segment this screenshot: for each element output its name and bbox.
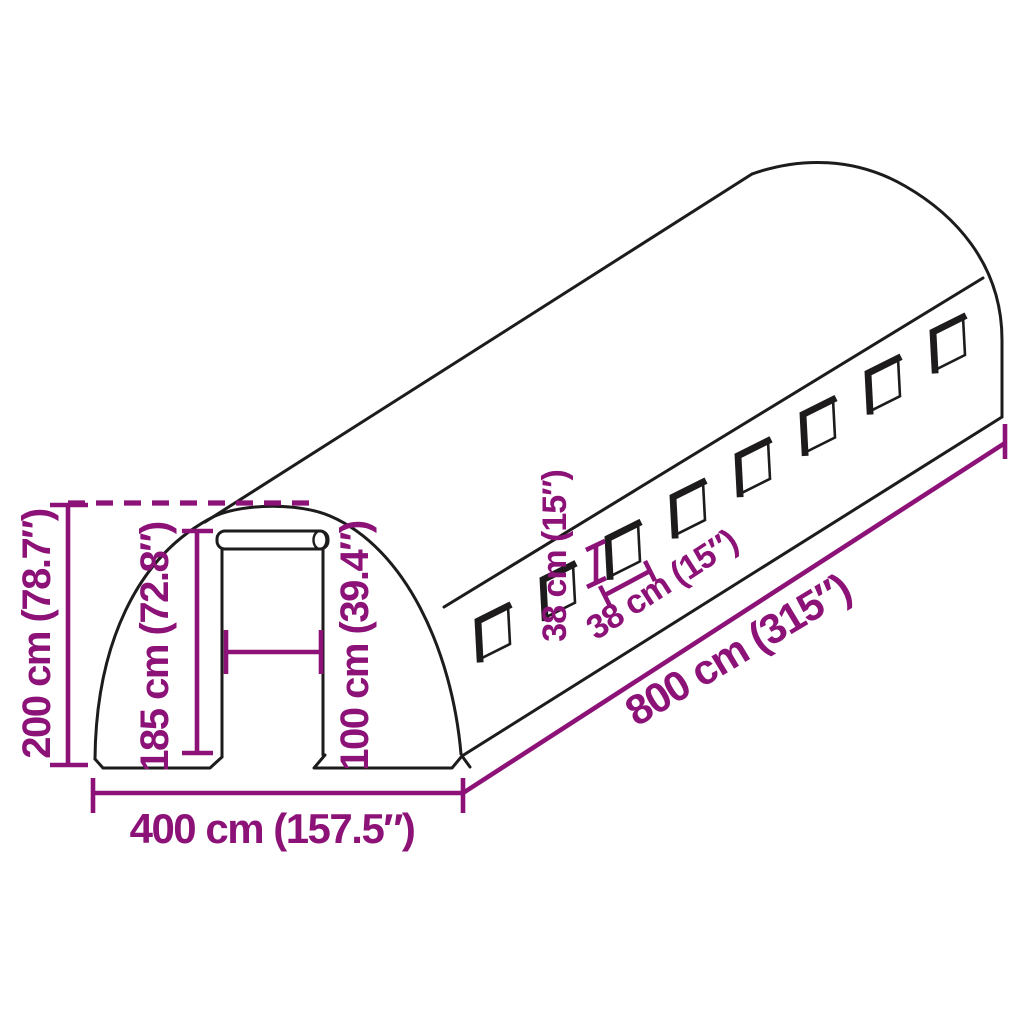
window-8 — [933, 317, 965, 370]
dimension-door-width: 100 cm (39.4″) — [226, 521, 377, 771]
window-6 — [803, 400, 835, 453]
window-3 — [608, 523, 640, 576]
door-height-label: 185 cm (72.8″) — [133, 522, 177, 772]
greenhouse-dimension-diagram: 200 cm (78.7″) 185 cm (72.8″) 100 cm (39… — [0, 0, 1024, 1024]
window-height-line — [586, 541, 606, 587]
door-width-label: 100 cm (39.4″) — [333, 521, 377, 771]
window-1 — [478, 606, 510, 659]
total-height-label: 200 cm (78.7″) — [15, 509, 59, 759]
door-roll-bar-cap — [314, 531, 327, 549]
greenhouse-outline — [95, 162, 1002, 768]
dimension-base-width: 400 cm (157.5″) — [93, 778, 463, 852]
door-height-line — [182, 531, 213, 753]
window-7 — [868, 358, 900, 411]
door-roll-bar — [217, 531, 328, 549]
dimension-door-height: 185 cm (72.8″) — [133, 522, 213, 772]
base-width-label: 400 cm (157.5″) — [130, 805, 415, 852]
door-width-line — [226, 630, 321, 674]
window-height-label: 38 cm (15″) — [536, 470, 574, 642]
window-4 — [673, 482, 705, 535]
window-5 — [738, 441, 770, 494]
diagram-canvas: 200 cm (78.7″) 185 cm (72.8″) 100 cm (39… — [0, 0, 1024, 1024]
